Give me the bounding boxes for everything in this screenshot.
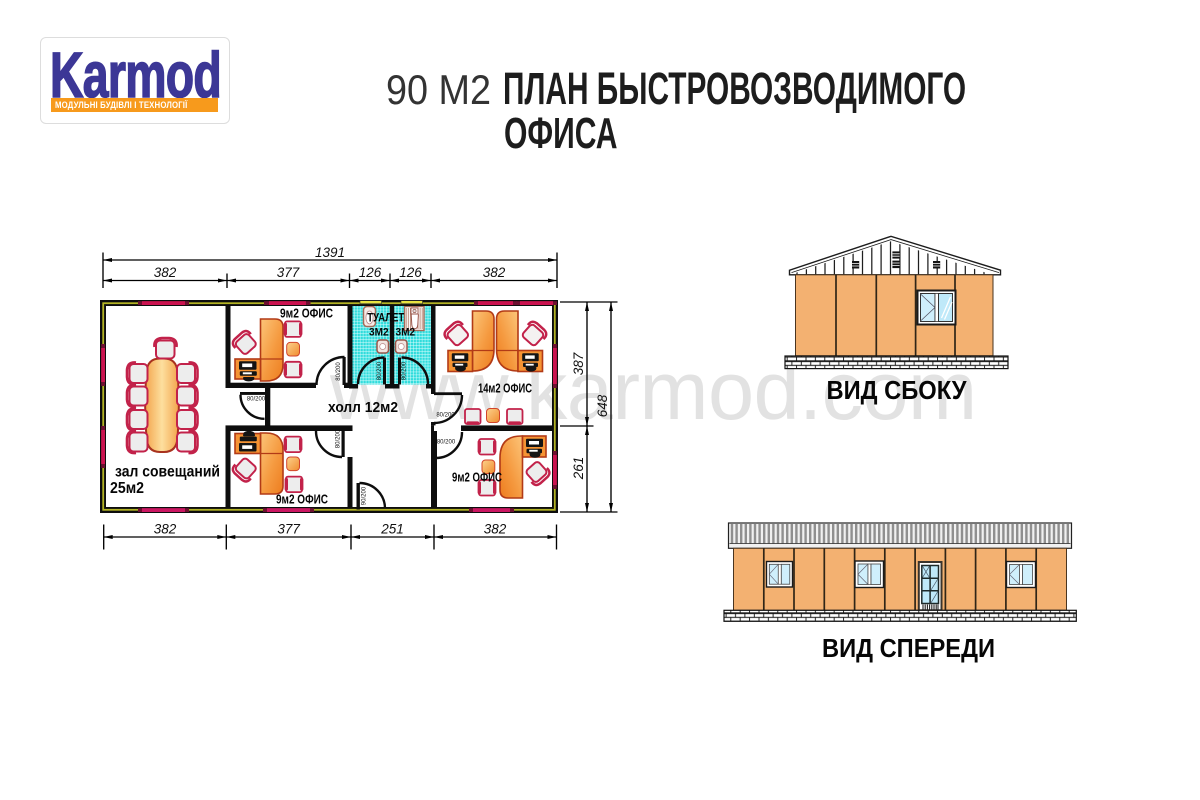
svg-text:387: 387 <box>571 352 586 375</box>
svg-text:80/200: 80/200 <box>437 440 456 446</box>
svg-text:3М2: 3М2 <box>396 327 416 339</box>
svg-text:80/200: 80/200 <box>336 429 342 448</box>
svg-text:9м2 ОФИС: 9м2 ОФИС <box>452 471 502 485</box>
svg-text:261: 261 <box>571 457 586 481</box>
svg-text:126: 126 <box>399 265 422 280</box>
svg-text:90/200: 90/200 <box>362 486 368 505</box>
svg-text:80/200: 80/200 <box>336 362 342 381</box>
svg-text:ВИД СПЕРЕДИ: ВИД СПЕРЕДИ <box>822 633 995 663</box>
svg-text:80/200: 80/200 <box>377 361 383 380</box>
svg-text:ТУАЛЕТ: ТУАЛЕТ <box>367 313 404 325</box>
svg-text:648: 648 <box>595 394 610 417</box>
svg-text:377: 377 <box>277 265 300 280</box>
svg-text:9м2 ОФИС: 9м2 ОФИС <box>276 493 328 507</box>
svg-text:25м2: 25м2 <box>110 480 144 497</box>
svg-text:холл 12м2: холл 12м2 <box>328 400 398 416</box>
svg-text:ВИД СБОКУ: ВИД СБОКУ <box>827 375 968 405</box>
svg-text:382: 382 <box>154 522 177 537</box>
svg-text:80/200: 80/200 <box>436 413 455 419</box>
svg-text:80/200: 80/200 <box>247 397 266 403</box>
svg-text:14м2 ОФИС: 14м2 ОФИС <box>478 382 532 396</box>
svg-text:251: 251 <box>380 522 404 537</box>
svg-text:1391: 1391 <box>315 245 345 260</box>
svg-text:382: 382 <box>484 522 507 537</box>
svg-text:3М2: 3М2 <box>369 327 389 339</box>
svg-text:126: 126 <box>359 265 382 280</box>
svg-text:382: 382 <box>483 265 506 280</box>
svg-text:377: 377 <box>277 522 300 537</box>
svg-text:80/200: 80/200 <box>402 361 408 380</box>
svg-text:зал совещаний: зал совещаний <box>115 464 220 481</box>
svg-text:382: 382 <box>154 265 177 280</box>
svg-text:9м2 ОФИС: 9м2 ОФИС <box>280 307 333 321</box>
